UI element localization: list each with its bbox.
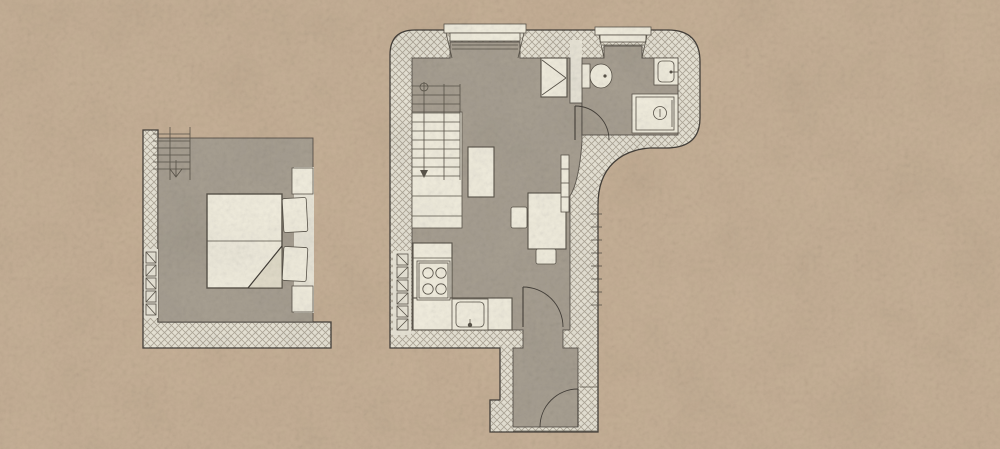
paper-blotch-texture: [0, 0, 1000, 449]
floor-plan-canvas: [0, 0, 1000, 449]
floor-plan-drawing: [0, 0, 1000, 449]
